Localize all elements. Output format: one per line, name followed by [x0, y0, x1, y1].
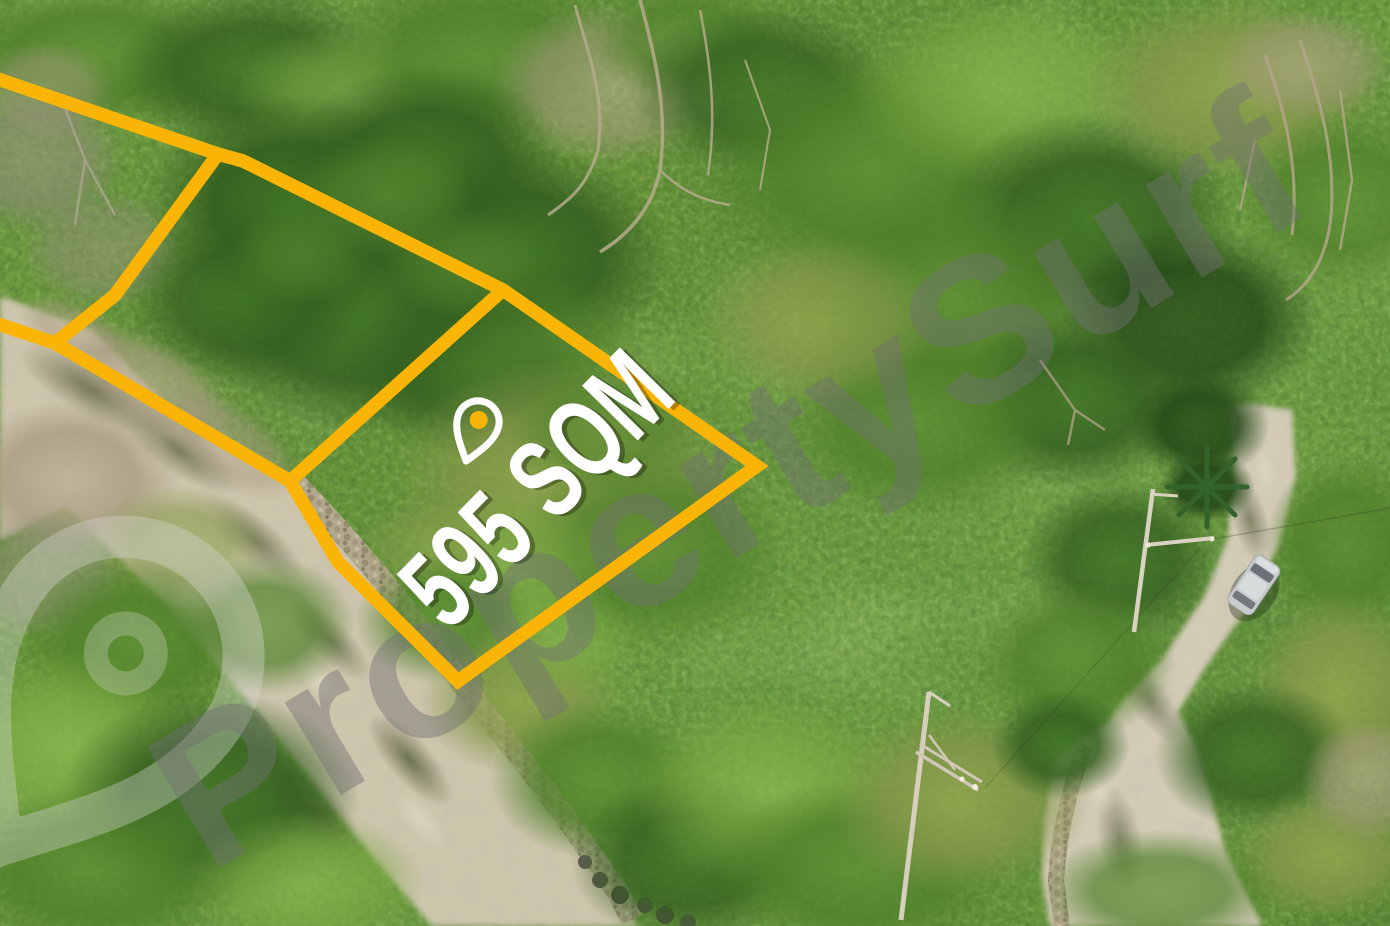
- property-aerial-photo: PropertySurf 595 SQM 595 SQM: [0, 0, 1390, 926]
- aerial-photo-canvas: PropertySurf 595 SQM 595 SQM: [0, 0, 1390, 926]
